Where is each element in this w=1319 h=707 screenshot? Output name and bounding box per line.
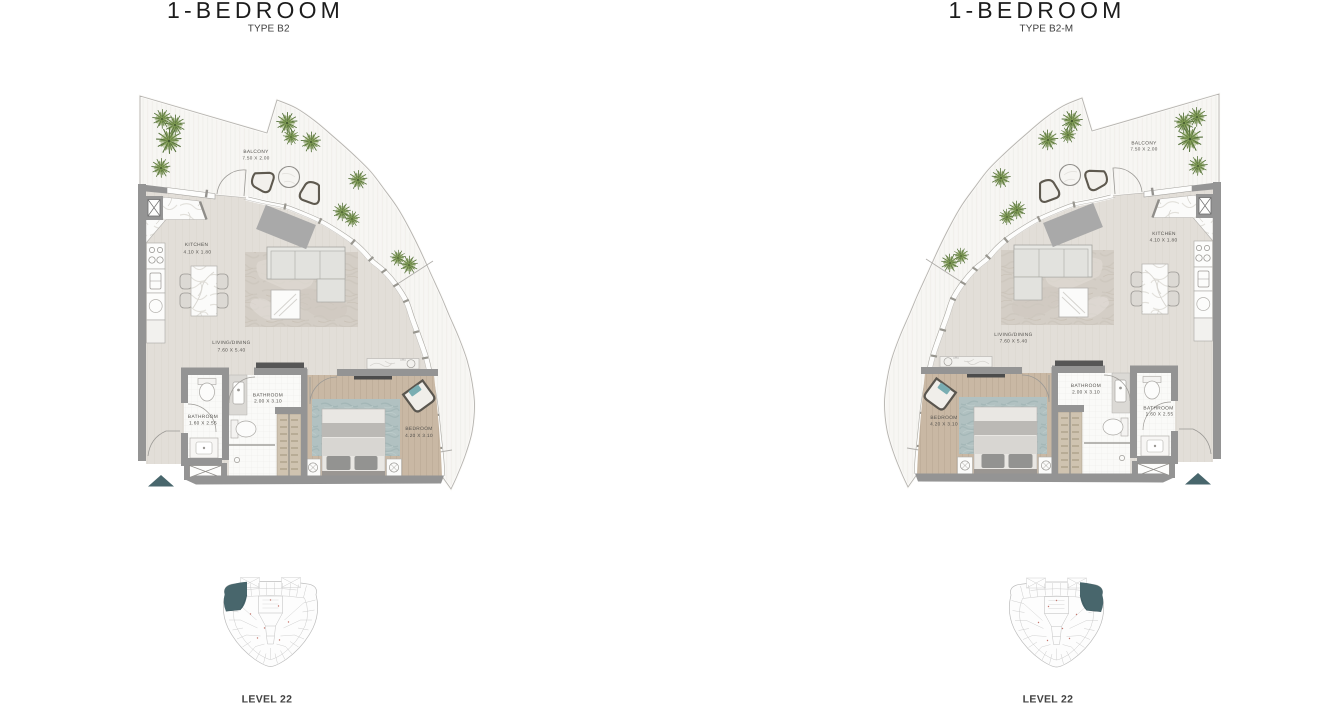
svg-text:BATHROOM: BATHROOM [1071, 383, 1101, 389]
svg-text:BEDROOM: BEDROOM [405, 426, 432, 432]
svg-text:BALCONY: BALCONY [243, 149, 268, 155]
svg-text:2.00 X 3.10: 2.00 X 3.10 [1072, 389, 1100, 395]
svg-text:KITCHEN: KITCHEN [185, 242, 209, 248]
svg-text:1-BEDROOM: 1-BEDROOM [948, 0, 1125, 23]
svg-text:2.00 X 3.10: 2.00 X 3.10 [254, 398, 282, 404]
svg-text:BEDROOM: BEDROOM [930, 415, 957, 421]
svg-text:TYPE B2-M: TYPE B2-M [1020, 23, 1074, 34]
svg-text:BATHROOM: BATHROOM [1143, 405, 1173, 411]
svg-text:TYPE B2: TYPE B2 [248, 23, 290, 34]
svg-text:1-BEDROOM: 1-BEDROOM [167, 0, 344, 23]
svg-text:BATHROOM: BATHROOM [253, 392, 283, 398]
svg-text:BALCONY: BALCONY [1131, 141, 1156, 147]
svg-text:LIVING/DINING: LIVING/DINING [212, 340, 250, 346]
svg-text:7.50 X 2.00: 7.50 X 2.00 [242, 156, 269, 161]
svg-text:4.10 X 1.80: 4.10 X 1.80 [183, 249, 211, 255]
svg-text:7.50 X 2.00: 7.50 X 2.00 [1130, 147, 1157, 152]
svg-text:1.60 X 2.55: 1.60 X 2.55 [1146, 411, 1174, 417]
svg-text:7.60 X 5.40: 7.60 X 5.40 [218, 347, 246, 353]
svg-text:LEVEL 22: LEVEL 22 [242, 694, 293, 706]
svg-text:4.10 X 1.80: 4.10 X 1.80 [1150, 237, 1178, 243]
svg-text:BATHROOM: BATHROOM [188, 414, 218, 420]
svg-text:4.20 X 3.10: 4.20 X 3.10 [930, 421, 958, 427]
svg-text:KITCHEN: KITCHEN [1152, 231, 1176, 237]
svg-text:1.60 X 2.55: 1.60 X 2.55 [189, 420, 217, 426]
svg-text:LIVING/DINING: LIVING/DINING [994, 332, 1032, 338]
svg-text:7.60 X 5.40: 7.60 X 5.40 [1000, 338, 1028, 344]
svg-text:4.20 X 3.10: 4.20 X 3.10 [405, 432, 433, 438]
svg-text:LEVEL 22: LEVEL 22 [1023, 694, 1074, 706]
